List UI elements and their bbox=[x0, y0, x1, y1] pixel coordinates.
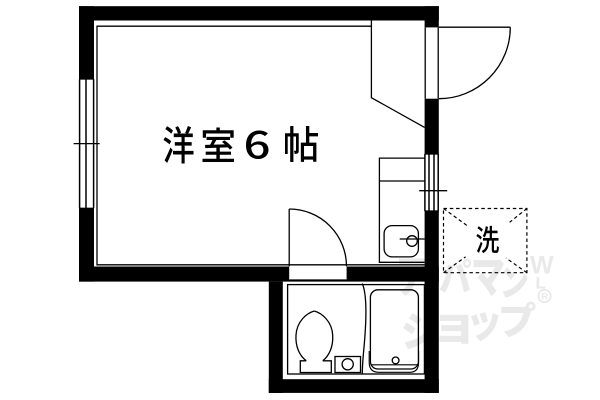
svg-text:R: R bbox=[542, 292, 549, 302]
